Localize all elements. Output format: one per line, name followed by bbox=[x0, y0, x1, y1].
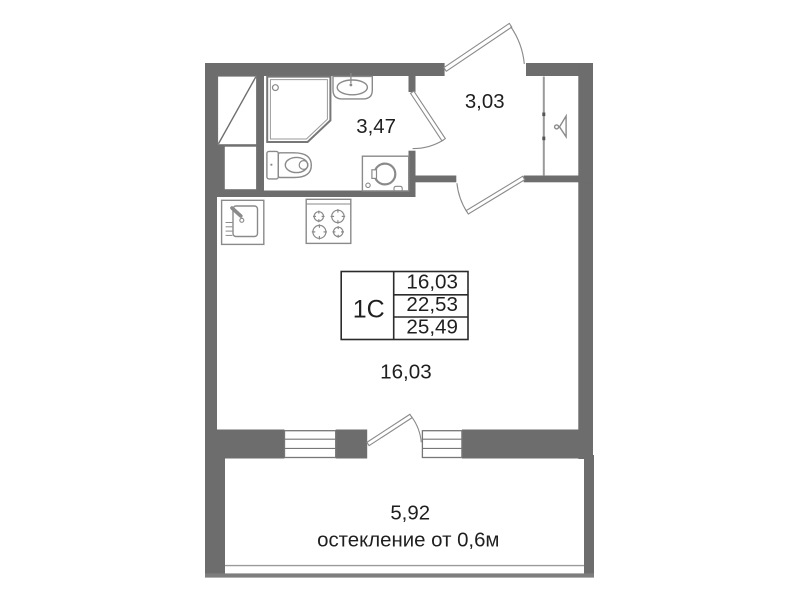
svg-text:остекление от 0,6м: остекление от 0,6м bbox=[317, 529, 499, 551]
svg-text:25,49: 25,49 bbox=[406, 316, 458, 339]
svg-text:1С: 1С bbox=[353, 296, 385, 324]
svg-text:22,53: 22,53 bbox=[406, 293, 458, 316]
svg-text:5,92: 5,92 bbox=[390, 502, 430, 524]
svg-text:3,47: 3,47 bbox=[356, 116, 396, 138]
svg-text:3,03: 3,03 bbox=[465, 91, 505, 113]
svg-text:16,03: 16,03 bbox=[406, 271, 458, 294]
svg-text:16,03: 16,03 bbox=[380, 360, 432, 383]
